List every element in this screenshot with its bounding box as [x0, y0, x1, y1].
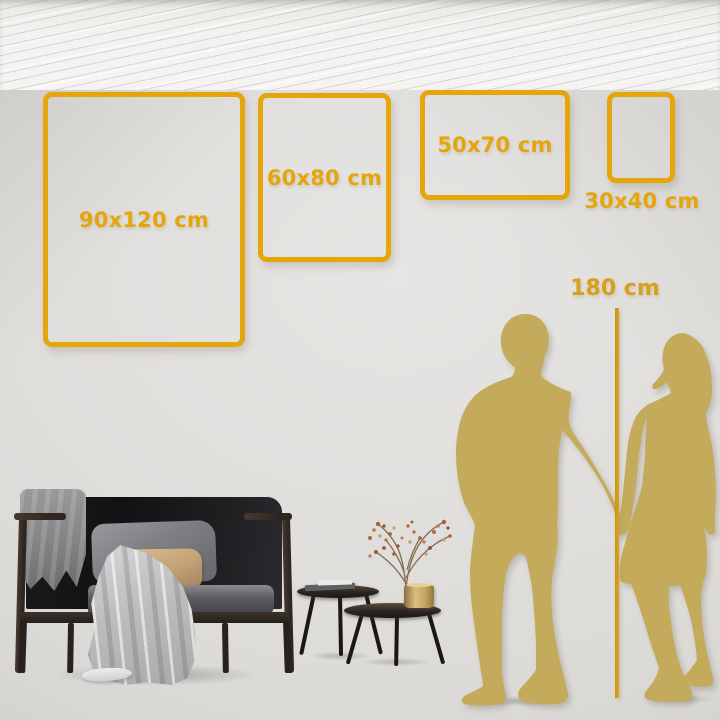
frame-30x40-label: 30x40 cm: [577, 189, 707, 213]
frame-90x120-label: 90x120 cm: [79, 208, 209, 232]
sofa-leg: [67, 623, 74, 673]
table-leg: [338, 596, 343, 656]
dark-throw-blanket: [20, 489, 86, 591]
sofa-leg: [222, 623, 229, 673]
frame-90x120: 90x120 cm: [43, 92, 245, 347]
woman-silhouette: [616, 333, 716, 702]
frame-60x80-label: 60x80 cm: [267, 166, 382, 190]
sofa-armrest-right: [244, 513, 292, 520]
height-reference-label: 180 cm: [563, 276, 667, 301]
frame-50x70-label: 50x70 cm: [437, 133, 552, 157]
table-leg: [299, 594, 315, 655]
height-measure-line: [615, 308, 619, 698]
wood-floor: [0, 0, 720, 90]
couple-silhouettes: [450, 300, 720, 715]
frame-60x80: 60x80 cm: [258, 93, 391, 262]
sofa-leg: [18, 621, 27, 673]
sofa-armrest-left: [14, 513, 66, 520]
size-guide-mockup: 90x120 cm 60x80 cm 50x70 cm 30x40 cm: [0, 0, 720, 720]
frame-50x70: 50x70 cm: [420, 90, 570, 200]
frame-30x40: [607, 92, 675, 183]
dried-branch: [350, 512, 462, 590]
gold-vase: [404, 585, 434, 608]
man-silhouette: [456, 314, 623, 706]
